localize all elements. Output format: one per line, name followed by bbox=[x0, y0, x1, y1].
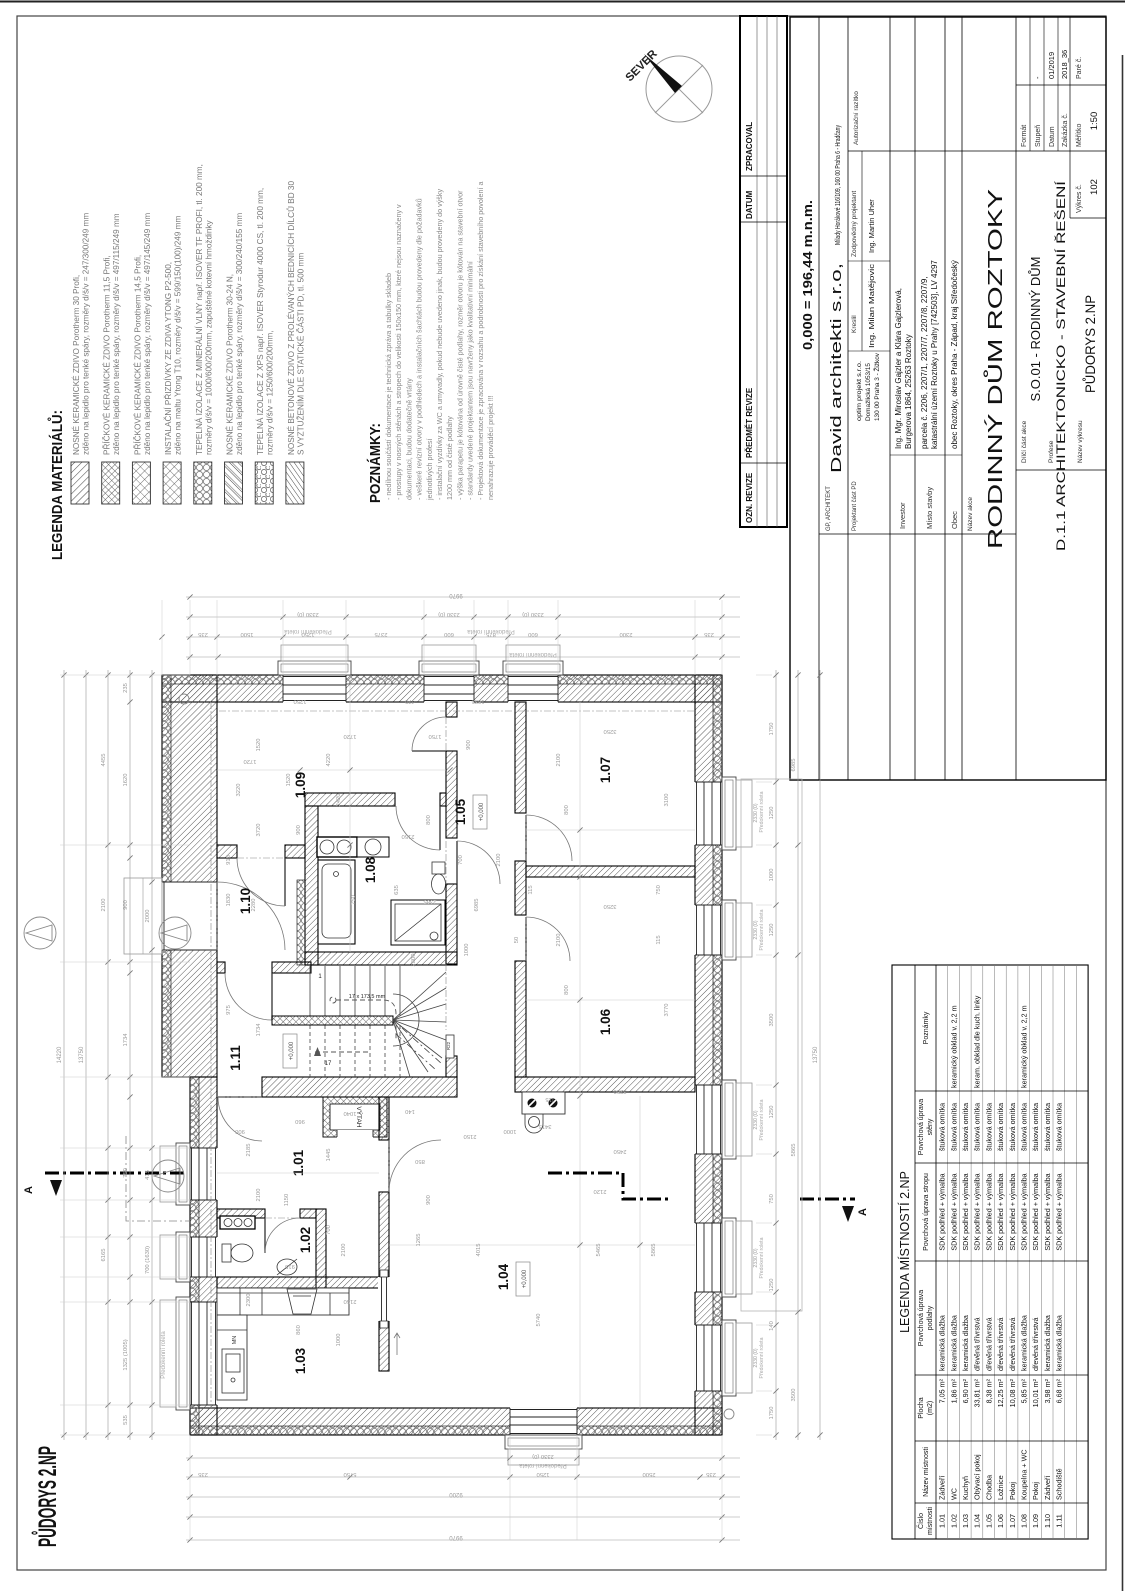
svg-text:Číslo: Číslo bbox=[916, 1513, 925, 1529]
svg-text:David architekti s.r.o,: David architekti s.r.o, bbox=[829, 263, 845, 473]
svg-text:8,38 m²: 8,38 m² bbox=[984, 1378, 993, 1403]
svg-text:Název místnosti: Název místnosti bbox=[923, 1447, 930, 1497]
svg-text:1250: 1250 bbox=[294, 698, 307, 704]
svg-text:2185: 2185 bbox=[246, 1144, 252, 1157]
svg-text:1.03: 1.03 bbox=[293, 1347, 308, 1374]
svg-text:1830: 1830 bbox=[226, 894, 232, 907]
svg-text:1000: 1000 bbox=[464, 944, 470, 957]
svg-text:975: 975 bbox=[226, 1005, 232, 1015]
svg-text:štuková omítka: štuková omítka bbox=[1020, 1103, 1029, 1151]
svg-text:katastrální území Roztoky u Pr: katastrální území Roztoky u Prahy [74250… bbox=[930, 260, 939, 449]
svg-text:1.11: 1.11 bbox=[228, 1045, 243, 1071]
svg-text:2385: 2385 bbox=[424, 898, 437, 904]
svg-text:1.04: 1.04 bbox=[496, 1263, 511, 1290]
svg-text:600: 600 bbox=[444, 631, 454, 637]
svg-text:115: 115 bbox=[528, 885, 534, 894]
svg-text:1500: 1500 bbox=[241, 631, 254, 637]
svg-text:2420: 2420 bbox=[336, 794, 342, 807]
svg-text:3500: 3500 bbox=[791, 1389, 797, 1402]
svg-text:LEGENDA MATERIÁLŮ:: LEGENDA MATERIÁLŮ: bbox=[47, 410, 66, 560]
svg-text:R22: R22 bbox=[446, 1041, 451, 1050]
svg-text:13750: 13750 bbox=[813, 1046, 819, 1063]
svg-text:jednotlivých profesí: jednotlivých profesí bbox=[425, 438, 434, 501]
svg-text:Předokenní roleta: Předokenní roleta bbox=[161, 1331, 167, 1379]
svg-text:SDK podhled + výmalba: SDK podhled + výmalba bbox=[961, 1173, 970, 1250]
svg-text:1750: 1750 bbox=[769, 1407, 775, 1420]
svg-text:keramická dlažba: keramická dlažba bbox=[938, 1315, 947, 1371]
svg-text:5865: 5865 bbox=[791, 1144, 797, 1157]
svg-text:SDK podhled + výmalba: SDK podhled + výmalba bbox=[938, 1173, 947, 1250]
svg-text:SDK podhled + výmalba: SDK podhled + výmalba bbox=[1055, 1173, 1064, 1250]
svg-text:PŮDORYS 2.NP: PŮDORYS 2.NP bbox=[30, 1446, 62, 1547]
svg-text:535: 535 bbox=[123, 1415, 129, 1425]
svg-text:Projektant část PD: Projektant část PD bbox=[852, 481, 858, 531]
svg-text:115: 115 bbox=[656, 935, 662, 944]
svg-text:Název akce: Název akce bbox=[967, 497, 974, 531]
svg-text:(m2): (m2) bbox=[927, 1401, 934, 1415]
svg-text:700 (1630): 700 (1630) bbox=[145, 1246, 151, 1274]
svg-text:Předokenní roleta: Předokenní roleta bbox=[467, 628, 515, 634]
svg-text:SDK podhled + výmalba: SDK podhled + výmalba bbox=[949, 1173, 958, 1250]
svg-text:2100: 2100 bbox=[341, 1244, 347, 1257]
svg-text:1200 mm od čisté podlahy: 1200 mm od čisté podlahy bbox=[445, 416, 454, 500]
svg-text:800: 800 bbox=[564, 985, 570, 995]
svg-text:915: 915 bbox=[285, 1263, 295, 1269]
svg-text:5865: 5865 bbox=[651, 1244, 657, 1257]
svg-text:dřevěná třívrstvá: dřevěná třívrstvá bbox=[1031, 1317, 1040, 1371]
svg-text:1250: 1250 bbox=[769, 1106, 775, 1119]
svg-text:+0,000: +0,000 bbox=[479, 802, 485, 821]
svg-text:A: A bbox=[23, 1186, 35, 1194]
svg-text:6165: 6165 bbox=[101, 1249, 107, 1262]
svg-text:750: 750 bbox=[351, 895, 357, 905]
svg-text:10,08 m²: 10,08 m² bbox=[1008, 1378, 1017, 1407]
svg-text:- instalační vyzdívky za WC: - instalační vyzdívky za WC a umyvadly, … bbox=[435, 189, 444, 500]
svg-text:1.09: 1.09 bbox=[1031, 1514, 1040, 1528]
svg-text:900: 900 bbox=[466, 740, 472, 750]
svg-text:3250: 3250 bbox=[604, 903, 617, 909]
svg-text:dokumentaci, budou dodatečně v: dokumentaci, budou dodatečně vrtány bbox=[404, 378, 413, 500]
svg-text:Předokenní roleta: Předokenní roleta bbox=[509, 651, 557, 657]
svg-text:Předokenní roleta: Předokenní roleta bbox=[759, 1099, 765, 1140]
svg-text:Předokenní roleta: Předokenní roleta bbox=[284, 628, 332, 634]
svg-text:6,68 m²: 6,68 m² bbox=[1055, 1378, 1064, 1403]
svg-text:1.10: 1.10 bbox=[1043, 1514, 1052, 1528]
svg-text:4220: 4220 bbox=[326, 754, 332, 767]
svg-text:960: 960 bbox=[295, 1118, 305, 1124]
svg-text:2100: 2100 bbox=[556, 934, 562, 947]
svg-text:9970: 9970 bbox=[449, 1534, 463, 1540]
svg-text:- standardy uvedené projekta: - standardy uvedené projektantem jsou na… bbox=[466, 261, 475, 500]
svg-text:3770: 3770 bbox=[664, 1004, 670, 1017]
svg-text:Název výkresu: Název výkresu bbox=[1077, 420, 1084, 463]
svg-text:235: 235 bbox=[706, 1471, 716, 1477]
svg-text:1265: 1265 bbox=[416, 1234, 422, 1247]
svg-text:1.08: 1.08 bbox=[1020, 1514, 1029, 1528]
svg-text:DATUM: DATUM bbox=[745, 190, 754, 219]
svg-text:2330 (0): 2330 (0) bbox=[522, 611, 544, 617]
svg-text:2330 (0): 2330 (0) bbox=[297, 611, 319, 617]
svg-text:keramická dlažba: keramická dlažba bbox=[1020, 1315, 1029, 1371]
svg-text:S.O.01 - RODINNÝ DŮM: S.O.01 - RODINNÝ DŮM bbox=[1028, 257, 1043, 402]
svg-text:2150: 2150 bbox=[402, 833, 415, 839]
svg-text:RODINNÝ DŮM ROZTOKY: RODINNÝ DŮM ROZTOKY bbox=[983, 189, 1007, 549]
svg-text:ZPRACOVAL: ZPRACOVAL bbox=[745, 122, 754, 171]
svg-text:3220: 3220 bbox=[236, 784, 242, 797]
svg-text:900: 900 bbox=[426, 1195, 432, 1205]
svg-text:1520: 1520 bbox=[256, 739, 262, 752]
svg-text:1.06: 1.06 bbox=[598, 1008, 613, 1035]
svg-text:Předokenní roleta: Předokenní roleta bbox=[519, 1462, 567, 1468]
svg-text:33,81 m²: 33,81 m² bbox=[973, 1378, 982, 1407]
svg-text:- výška parapetu je kótována: - výška parapetu je kótována od úrovně č… bbox=[455, 190, 464, 500]
svg-text:130 00 Praha 3 - Žižkov: 130 00 Praha 3 - Žižkov bbox=[872, 352, 881, 421]
svg-text:140: 140 bbox=[405, 1108, 415, 1114]
svg-text:860: 860 bbox=[296, 1325, 302, 1335]
svg-text:4455: 4455 bbox=[101, 754, 107, 767]
svg-text:rozměry d/š/v = 1000/600/200mm: rozměry d/š/v = 1000/600/200mm, zapuštěn… bbox=[204, 219, 213, 455]
svg-text:stěny: stěny bbox=[927, 1118, 934, 1135]
svg-text:1,86 m²: 1,86 m² bbox=[949, 1378, 958, 1403]
svg-text:1620: 1620 bbox=[123, 774, 129, 787]
svg-text:915: 915 bbox=[226, 855, 232, 865]
svg-text:štuková omítka: štuková omítka bbox=[996, 1103, 1005, 1151]
svg-text:MN: MN bbox=[232, 1336, 238, 1345]
svg-text:5465: 5465 bbox=[596, 1244, 602, 1257]
svg-text:místnosti: místnosti bbox=[927, 1507, 934, 1535]
svg-text:1445: 1445 bbox=[326, 1149, 332, 1162]
svg-text:Autorizační razítko: Autorizační razítko bbox=[853, 91, 860, 145]
svg-text:2120: 2120 bbox=[594, 1188, 607, 1194]
svg-text:1250: 1250 bbox=[769, 1279, 775, 1292]
svg-text:PŘÍČKOVÉ KERAMICKÉ ZDIVO Porot: PŘÍČKOVÉ KERAMICKÉ ZDIVO Porotherm 14,5 … bbox=[132, 255, 142, 455]
svg-text:Předokenní roleta: Předokenní roleta bbox=[759, 791, 765, 832]
svg-text:Datum: Datum bbox=[1049, 126, 1056, 147]
svg-text:štuková omítka: štuková omítka bbox=[1031, 1103, 1040, 1151]
svg-text:Povrchová úprava: Povrchová úprava bbox=[918, 1099, 925, 1156]
svg-text:štuková omítka: štuková omítka bbox=[1055, 1103, 1064, 1151]
svg-text:1000: 1000 bbox=[336, 1334, 342, 1347]
svg-text:1: 1 bbox=[318, 974, 322, 980]
svg-text:2280: 2280 bbox=[251, 899, 257, 912]
svg-text:štuková omítka: štuková omítka bbox=[938, 1103, 947, 1151]
svg-text:2300: 2300 bbox=[246, 1294, 252, 1307]
svg-text:Místo stavby: Místo stavby bbox=[925, 487, 934, 529]
svg-text:102: 102 bbox=[1089, 179, 1100, 195]
svg-text:PŘÍČKOVÉ KERAMICKÉ ZDIVO Porot: PŘÍČKOVÉ KERAMICKÉ ZDIVO Porotherm 11,5 … bbox=[102, 255, 112, 455]
svg-text:1.04: 1.04 bbox=[973, 1514, 982, 1528]
svg-text:235: 235 bbox=[123, 683, 129, 693]
svg-text:- veškeré revizní otvory v p: - veškeré revizní otvory v podhledech a … bbox=[415, 198, 424, 500]
svg-text:1.01: 1.01 bbox=[291, 1149, 306, 1176]
svg-text:5740: 5740 bbox=[536, 1314, 542, 1327]
svg-text:2100: 2100 bbox=[556, 754, 562, 767]
svg-text:SDK podhled + výmalba: SDK podhled + výmalba bbox=[984, 1173, 993, 1250]
svg-text:A: A bbox=[857, 1208, 869, 1216]
svg-text:115: 115 bbox=[545, 1096, 554, 1102]
svg-text:štuková omítka: štuková omítka bbox=[984, 1103, 993, 1151]
svg-text:nenahrazuje prováděcí projekt: nenahrazuje prováděcí projekt !!! bbox=[486, 395, 495, 500]
svg-text:6985: 6985 bbox=[474, 899, 480, 912]
svg-text:NOSNÉ KERAMICKÉ ZDIVO Porother: NOSNÉ KERAMICKÉ ZDIVO Porotherm 30 Profi… bbox=[71, 275, 81, 455]
svg-text:6,90 m²: 6,90 m² bbox=[961, 1378, 970, 1403]
svg-text:750: 750 bbox=[769, 1194, 775, 1204]
svg-text:1720: 1720 bbox=[244, 758, 257, 764]
svg-text:1.03: 1.03 bbox=[961, 1514, 970, 1528]
svg-text:Ložnice: Ložnice bbox=[996, 1475, 1005, 1500]
svg-text:obec Roztoky, okres Praha - Zá: obec Roztoky, okres Praha - Západ, kraj … bbox=[950, 260, 959, 449]
svg-text:1520: 1520 bbox=[286, 774, 292, 787]
svg-text:Zádveří: Zádveří bbox=[938, 1476, 947, 1500]
svg-text:dřevěná třívrstvá: dřevěná třívrstvá bbox=[1008, 1317, 1017, 1371]
svg-text:rozměry d/š/v = 1250/600/200mm: rozměry d/š/v = 1250/600/200mm, bbox=[266, 331, 275, 455]
svg-text:750: 750 bbox=[123, 1168, 129, 1178]
svg-text:Domažlická 1053/15: Domažlická 1053/15 bbox=[865, 363, 872, 421]
svg-text:zděno na lepidlo pro tenké spá: zděno na lepidlo pro tenké spáry, rozměr… bbox=[143, 213, 152, 455]
svg-text:17 x 173,5 mm: 17 x 173,5 mm bbox=[349, 994, 386, 1000]
svg-text:3250: 3250 bbox=[604, 728, 617, 734]
svg-text:750: 750 bbox=[656, 885, 662, 895]
svg-text:PŘEDMĚT REVIZE: PŘEDMĚT REVIZE bbox=[745, 387, 754, 458]
svg-text:štuková omítka: štuková omítka bbox=[961, 1103, 970, 1151]
svg-text:dřevěná třívrstvá: dřevěná třívrstvá bbox=[973, 1317, 982, 1371]
svg-text:635: 635 bbox=[394, 885, 400, 895]
svg-text:Ing. Milan Matějovic: Ing. Milan Matějovic bbox=[867, 264, 876, 348]
svg-text:1734: 1734 bbox=[123, 1033, 129, 1047]
svg-text:keramický obklad v. 2,2 m: keramický obklad v. 2,2 m bbox=[949, 1005, 958, 1088]
svg-text:800: 800 bbox=[426, 815, 432, 825]
svg-text:zděno na lepidlo pro tenké spá: zděno na lepidlo pro tenké spáry, rozměr… bbox=[235, 213, 244, 455]
svg-text:1150: 1150 bbox=[284, 1194, 290, 1206]
svg-text:- nedílnou součástí dokument: - nedílnou součástí dokumentace je techn… bbox=[384, 273, 393, 500]
svg-text:2150: 2150 bbox=[344, 1298, 357, 1304]
svg-text:1.08: 1.08 bbox=[363, 856, 378, 883]
svg-text:LEGENDA MÍSTNOSTÍ 2.NP: LEGENDA MÍSTNOSTÍ 2.NP bbox=[897, 1171, 912, 1333]
svg-text:SDK podhled + výmalba: SDK podhled + výmalba bbox=[1020, 1173, 1029, 1250]
svg-text:800: 800 bbox=[564, 805, 570, 815]
svg-text:6985: 6985 bbox=[791, 759, 797, 772]
svg-text:1:50: 1:50 bbox=[1089, 112, 1100, 131]
svg-text:Burgerova 1864, 25263 Roztoky: Burgerova 1864, 25263 Roztoky bbox=[904, 334, 913, 449]
svg-text:7,05 m²: 7,05 m² bbox=[938, 1378, 947, 1403]
svg-text:1.07: 1.07 bbox=[1008, 1514, 1017, 1528]
svg-text:dřevěná třívrstvá: dřevěná třívrstvá bbox=[984, 1317, 993, 1371]
svg-text:3250: 3250 bbox=[614, 1088, 627, 1094]
svg-text:140: 140 bbox=[769, 1321, 775, 1331]
svg-text:13750: 13750 bbox=[79, 1046, 85, 1063]
svg-text:Povrchová úprava stropu: Povrchová úprava stropu bbox=[923, 1173, 930, 1251]
svg-text:- prostupy v nosných stěnách: - prostupy v nosných stěnách a stropech … bbox=[394, 204, 403, 500]
svg-text:1040: 1040 bbox=[344, 1110, 357, 1116]
svg-text:1720: 1720 bbox=[344, 733, 357, 739]
svg-text:Výkres č.: Výkres č. bbox=[1076, 184, 1083, 213]
svg-text:1750: 1750 bbox=[769, 723, 775, 736]
svg-text:Poznámky: Poznámky bbox=[923, 1011, 930, 1044]
svg-text:OZN. REVIZE: OZN. REVIZE bbox=[745, 472, 754, 523]
svg-text:TEPELNÁ IZOLACE Z XPS např. IS: TEPELNÁ IZOLACE Z XPS např. ISOVER Styro… bbox=[255, 188, 265, 455]
svg-text:1000: 1000 bbox=[769, 869, 775, 882]
svg-text:1.05: 1.05 bbox=[984, 1514, 993, 1528]
svg-text:Zakázka č.: Zakázka č. bbox=[1062, 113, 1069, 147]
svg-text:D.1.1 ARCHITEKTONICKO - STAVEB: D.1.1 ARCHITEKTONICKO - STAVEBNÍ ŘEŠENÍ bbox=[1053, 180, 1068, 551]
svg-text:SDK podhled + výmalba: SDK podhled + výmalba bbox=[996, 1173, 1005, 1250]
svg-text:Koupelna + WC: Koupelna + WC bbox=[1020, 1449, 1029, 1500]
svg-text:Předokenní roleta: Předokenní roleta bbox=[759, 1337, 765, 1378]
svg-text:S VYZTUŽENÍM DLE STATICKÉ ČÁST: S VYZTUŽENÍM DLE STATICKÉ ČÁSTI PD, tl. … bbox=[295, 253, 305, 455]
svg-text:2800: 2800 bbox=[411, 954, 417, 967]
svg-text:2018_36: 2018_36 bbox=[1060, 50, 1069, 79]
svg-text:Investor: Investor bbox=[898, 502, 907, 529]
svg-text:2000: 2000 bbox=[145, 910, 151, 923]
svg-text:SDK podhled + výmalba: SDK podhled + výmalba bbox=[1008, 1173, 1017, 1250]
svg-text:900: 900 bbox=[296, 825, 302, 835]
svg-text:Plocha: Plocha bbox=[918, 1397, 925, 1419]
svg-text:keramická dlažba: keramická dlažba bbox=[949, 1315, 958, 1371]
svg-text:1734: 1734 bbox=[256, 1023, 262, 1037]
svg-text:Pokoj: Pokoj bbox=[1031, 1482, 1040, 1500]
svg-text:NOSNÉ BETONOVÉ ZDIVO Z PROLÉVA: NOSNÉ BETONOVÉ ZDIVO Z PROLÉVANÝCH BEDNI… bbox=[285, 181, 296, 455]
svg-text:WC: WC bbox=[949, 1488, 958, 1500]
svg-text:9970: 9970 bbox=[449, 592, 463, 598]
svg-text:zděno na lepidlo pro tenké spá: zděno na lepidlo pro tenké spáry, rozměr… bbox=[82, 213, 91, 455]
svg-text:14220: 14220 bbox=[57, 1046, 63, 1063]
svg-text:VÝTAH: VÝTAH bbox=[355, 1106, 364, 1127]
svg-text:keramický obklad v. 2,2 m: keramický obklad v. 2,2 m bbox=[1020, 1005, 1029, 1088]
svg-text:9200: 9200 bbox=[449, 1491, 463, 1497]
svg-text:3415: 3415 bbox=[539, 1123, 552, 1129]
svg-text:keram. obklad dle kuch. linky: keram. obklad dle kuch. linky bbox=[973, 995, 982, 1088]
svg-text:optim projekt s.r.o.: optim projekt s.r.o. bbox=[856, 361, 863, 421]
svg-text:900: 900 bbox=[235, 1128, 245, 1134]
svg-text:5,85 m²: 5,85 m² bbox=[1020, 1378, 1029, 1403]
svg-text:Zodpovědný projektant: Zodpovědný projektant bbox=[851, 191, 858, 257]
svg-text:2500: 2500 bbox=[643, 1471, 656, 1477]
svg-text:1.02: 1.02 bbox=[949, 1514, 958, 1528]
svg-text:SDK podhled + výmalba: SDK podhled + výmalba bbox=[1031, 1173, 1040, 1250]
svg-text:Měřítko: Měřítko bbox=[1076, 124, 1083, 147]
svg-text:2100: 2100 bbox=[101, 899, 107, 912]
svg-text:Paré č.: Paré č. bbox=[1076, 57, 1083, 79]
svg-text:3,98 m²: 3,98 m² bbox=[1043, 1378, 1052, 1403]
svg-text:1.09: 1.09 bbox=[293, 772, 308, 798]
svg-text:Předokenní roleta: Předokenní roleta bbox=[759, 1237, 765, 1278]
svg-text:GP, ARCHITEKT: GP, ARCHITEKT bbox=[826, 486, 832, 531]
svg-text:1.02: 1.02 bbox=[298, 1227, 313, 1253]
svg-text:Dílčí část akce: Dílčí část akce bbox=[1021, 420, 1028, 463]
svg-text:štuková omítka: štuková omítka bbox=[973, 1103, 982, 1151]
svg-text:2330 (0): 2330 (0) bbox=[438, 611, 460, 617]
svg-text:2100: 2100 bbox=[256, 1189, 262, 1202]
svg-text:1.07: 1.07 bbox=[598, 757, 613, 783]
svg-text:štuková omítka: štuková omítka bbox=[1043, 1103, 1052, 1151]
svg-text:4015: 4015 bbox=[476, 1244, 482, 1257]
svg-text:2300: 2300 bbox=[620, 631, 633, 637]
svg-text:PŮDORYS 2.NP: PŮDORYS 2.NP bbox=[1081, 295, 1098, 393]
svg-text:keramická dlažba: keramická dlažba bbox=[1043, 1315, 1052, 1371]
svg-text:600: 600 bbox=[528, 631, 538, 637]
svg-text:900: 900 bbox=[123, 900, 129, 910]
svg-text:10,01 m²: 10,01 m² bbox=[1031, 1378, 1040, 1407]
svg-text:- Projektová dokumentace je: - Projektová dokumentace je zpracována v… bbox=[476, 182, 485, 500]
svg-text:2375: 2375 bbox=[375, 631, 388, 637]
svg-text:TEPELNÁ IZOLACE Z MINERÁLNÍ VL: TEPELNÁ IZOLACE Z MINERÁLNÍ VLNY např. I… bbox=[194, 164, 204, 455]
svg-text:+0,000: +0,000 bbox=[522, 1269, 528, 1288]
svg-text:Stupeň: Stupeň bbox=[1035, 125, 1042, 147]
svg-text:Formát: Formát bbox=[1021, 125, 1028, 147]
svg-text:-: - bbox=[1033, 76, 1042, 79]
svg-text:50: 50 bbox=[514, 937, 520, 943]
svg-text:470: 470 bbox=[405, 698, 415, 704]
svg-text:3500: 3500 bbox=[769, 1014, 775, 1027]
svg-text:235: 235 bbox=[198, 631, 208, 637]
svg-text:Chodba: Chodba bbox=[984, 1475, 993, 1500]
svg-text:2450: 2450 bbox=[614, 1148, 627, 1154]
svg-text:parcela č. 2206, 2207/1, 2207/: parcela č. 2206, 2207/1, 2207/7, 2207/8,… bbox=[920, 276, 929, 449]
svg-text:dřevěná třívrstvá: dřevěná třívrstvá bbox=[996, 1317, 1005, 1371]
svg-text:700: 700 bbox=[458, 855, 464, 865]
svg-text:1250: 1250 bbox=[537, 1471, 550, 1477]
svg-text:2100: 2100 bbox=[496, 854, 502, 867]
svg-text:Obec: Obec bbox=[950, 511, 959, 529]
svg-text:SDK podhled + výmalba: SDK podhled + výmalba bbox=[973, 1173, 982, 1250]
svg-text:keramická dlažba: keramická dlažba bbox=[961, 1315, 970, 1371]
svg-text:1635: 1635 bbox=[472, 698, 485, 704]
svg-text:Povrchová úprava: Povrchová úprava bbox=[918, 1290, 925, 1347]
svg-text:Pokoj: Pokoj bbox=[1008, 1482, 1017, 1500]
svg-text:podlahy: podlahy bbox=[927, 1305, 934, 1330]
svg-text:5750: 5750 bbox=[344, 1471, 357, 1477]
svg-text:Zádveří: Zádveří bbox=[1043, 1476, 1052, 1500]
svg-text:SDK podhled + výmalba: SDK podhled + výmalba bbox=[1043, 1173, 1052, 1250]
svg-text:1.11: 1.11 bbox=[1055, 1514, 1064, 1527]
svg-text:1325 (1005): 1325 (1005) bbox=[123, 1339, 129, 1370]
svg-text:700: 700 bbox=[326, 1225, 332, 1235]
svg-text:2150: 2150 bbox=[464, 1133, 477, 1139]
svg-text:1250: 1250 bbox=[769, 924, 775, 937]
svg-text:3100: 3100 bbox=[664, 794, 670, 807]
svg-text:Kuchyň: Kuchyň bbox=[961, 1476, 970, 1500]
svg-text:POZNÁMKY:: POZNÁMKY: bbox=[367, 423, 384, 503]
svg-text:NOSNÉ KERAMICKÉ ZDIVO Porother: NOSNÉ KERAMICKÉ ZDIVO Porotherm 30-24 N, bbox=[225, 274, 235, 455]
svg-text:235: 235 bbox=[704, 631, 714, 637]
svg-text:INSTALAČNÍ PŘIZDÍVKY ZE ZDIVA: INSTALAČNÍ PŘIZDÍVKY ZE ZDIVA YTONG P2-5… bbox=[163, 262, 173, 455]
svg-text:12,25 m²: 12,25 m² bbox=[996, 1378, 1005, 1407]
svg-text:zděno na maltu Ytong T10, rozm: zděno na maltu Ytong T10, rozměry d/š/v … bbox=[174, 216, 183, 455]
svg-text:235: 235 bbox=[198, 1471, 208, 1477]
svg-text:1250: 1250 bbox=[769, 807, 775, 820]
svg-text:1750: 1750 bbox=[429, 733, 442, 739]
svg-text:Předokenní roleta: Předokenní roleta bbox=[759, 909, 765, 950]
svg-text:17: 17 bbox=[325, 1061, 332, 1067]
svg-text:0,000 = 196,44 m.n.m.: 0,000 = 196,44 m.n.m. bbox=[800, 200, 815, 350]
svg-text:Ing. Mgr. Miroslav Gajzler a K: Ing. Mgr. Miroslav Gajzler a Klára Gajzl… bbox=[894, 288, 903, 449]
svg-text:+0,000: +0,000 bbox=[289, 1041, 295, 1060]
svg-text:1.05: 1.05 bbox=[453, 798, 468, 825]
svg-text:zděno na lepidlo pro tenké spá: zděno na lepidlo pro tenké spáry, rozměr… bbox=[112, 213, 121, 455]
svg-text:415: 415 bbox=[145, 1170, 151, 1180]
svg-text:3720: 3720 bbox=[256, 824, 262, 837]
svg-text:2330 (0): 2330 (0) bbox=[532, 1453, 554, 1459]
svg-text:Obývací pokoj: Obývací pokoj bbox=[973, 1454, 982, 1500]
svg-text:keramická dlažba: keramická dlažba bbox=[1055, 1315, 1064, 1371]
svg-text:1000: 1000 bbox=[504, 1128, 517, 1134]
svg-text:štuková omítka: štuková omítka bbox=[1008, 1103, 1017, 1151]
svg-text:1.06: 1.06 bbox=[996, 1514, 1005, 1528]
svg-text:Schodiště: Schodiště bbox=[1055, 1468, 1064, 1500]
svg-text:Ing. Martin Uher: Ing. Martin Uher bbox=[867, 199, 876, 253]
svg-text:850: 850 bbox=[415, 1158, 425, 1164]
svg-text:01/2019: 01/2019 bbox=[1047, 52, 1056, 79]
